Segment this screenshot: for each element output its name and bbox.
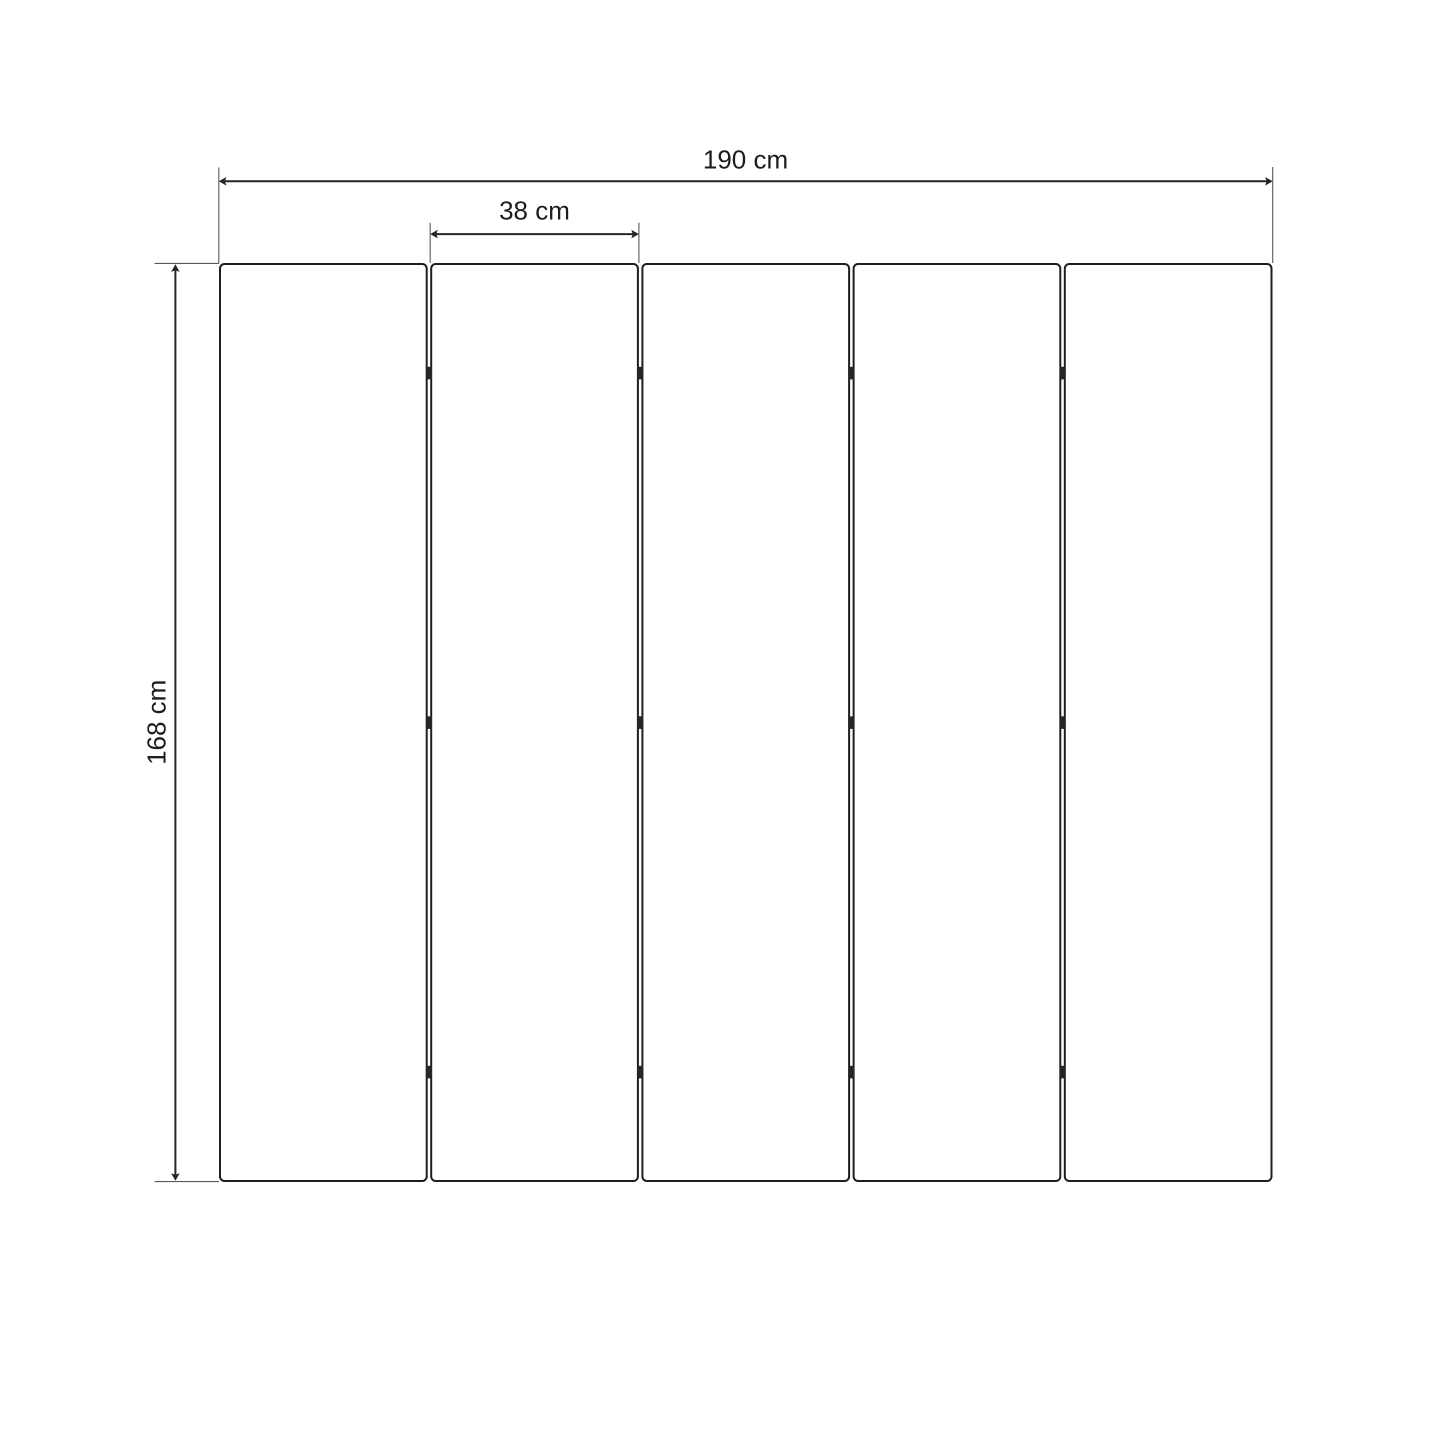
svg-text:38 cm: 38 cm [499, 196, 570, 226]
svg-text:168 cm: 168 cm [141, 680, 171, 765]
svg-text:190 cm: 190 cm [703, 145, 788, 175]
